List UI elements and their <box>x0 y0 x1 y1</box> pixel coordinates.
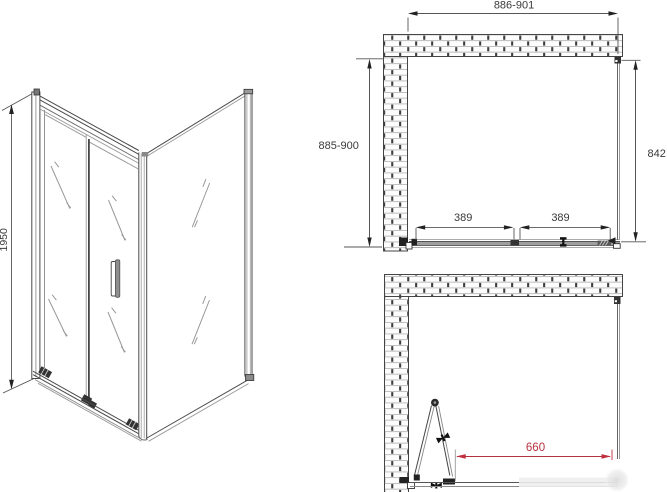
svg-text:660: 660 <box>526 442 545 454</box>
svg-text:886-901: 886-901 <box>494 0 534 11</box>
svg-text:389: 389 <box>551 212 569 224</box>
svg-text:842: 842 <box>648 148 666 160</box>
svg-text:389: 389 <box>454 212 472 224</box>
svg-text:885-900: 885-900 <box>319 140 359 152</box>
svg-text:1950: 1950 <box>0 228 10 252</box>
